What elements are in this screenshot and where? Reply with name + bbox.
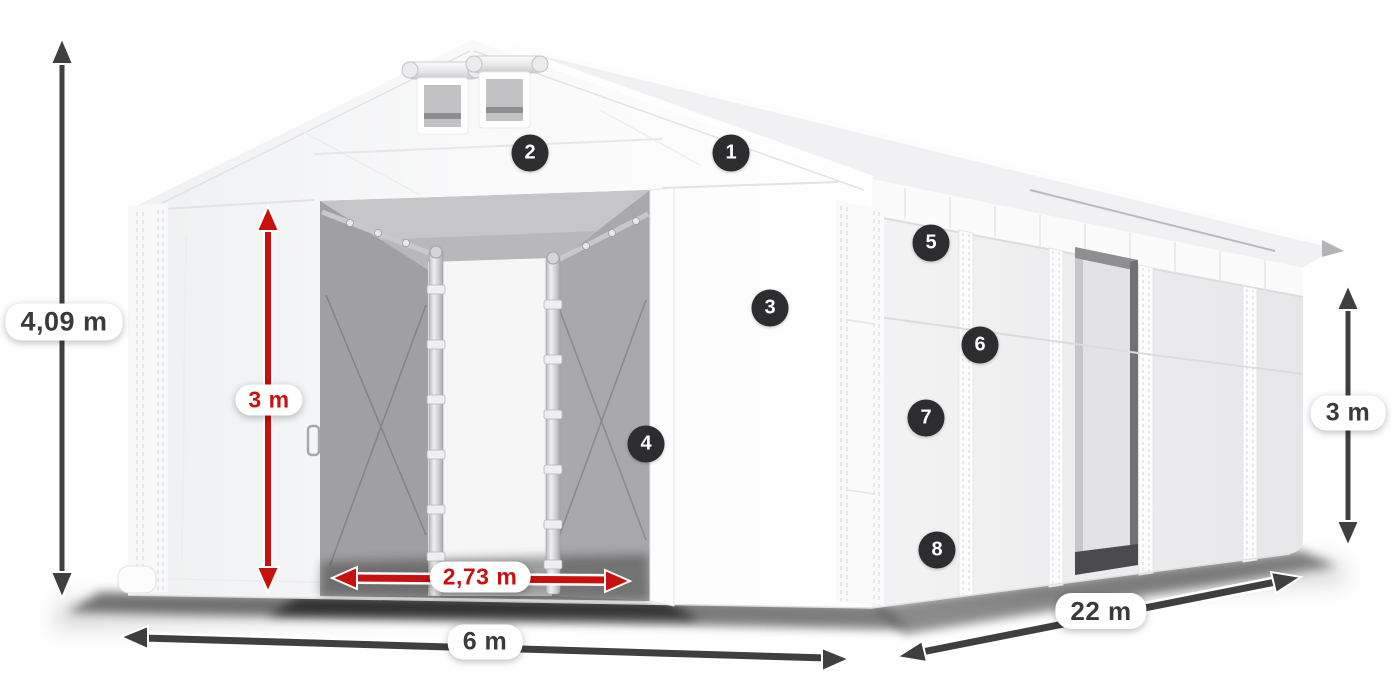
dimension-label-total-height: 4,09 m bbox=[5, 304, 122, 341]
part-marker-2[interactable]: 2 bbox=[512, 135, 549, 172]
door-jamb-right bbox=[650, 188, 674, 606]
dimension-label-front-width: 6 m bbox=[448, 625, 523, 660]
part-marker-1[interactable]: 1 bbox=[713, 135, 750, 172]
tent-illustration bbox=[0, 0, 1400, 700]
dimension-label-door-height: 3 m bbox=[235, 385, 302, 416]
part-marker-7[interactable]: 7 bbox=[908, 400, 945, 437]
dimension-label-length: 22 m bbox=[1055, 593, 1146, 629]
front-door-opening bbox=[320, 188, 674, 606]
side-door-opening bbox=[1075, 247, 1138, 575]
roof-end-cap bbox=[1322, 240, 1344, 257]
part-marker-3[interactable]: 3 bbox=[752, 290, 789, 327]
part-marker-5[interactable]: 5 bbox=[913, 225, 950, 262]
part-marker-8[interactable]: 8 bbox=[919, 532, 956, 569]
tent-dimension-diagram: 4,09 m 3 m 2,73 m 6 m 22 m 3 m 12345678 bbox=[0, 0, 1400, 700]
dimension-label-side-height: 3 m bbox=[1311, 396, 1386, 431]
front-left-corner-pillar bbox=[118, 203, 168, 595]
tent-foot bbox=[118, 566, 156, 593]
interior-pass-through bbox=[428, 258, 552, 596]
part-marker-4[interactable]: 4 bbox=[628, 426, 665, 463]
front-right-corner-strap bbox=[836, 200, 884, 606]
part-marker-6[interactable]: 6 bbox=[962, 327, 999, 364]
dimension-label-door-width: 2,73 m bbox=[430, 562, 531, 593]
